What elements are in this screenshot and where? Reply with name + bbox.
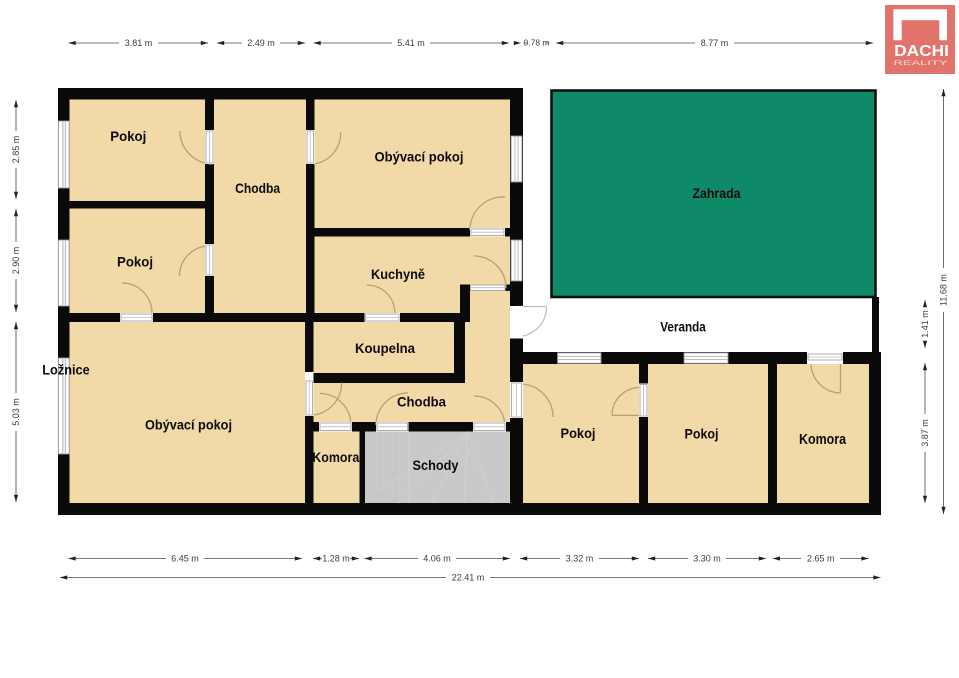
svg-text:22.41 m: 22.41 m bbox=[452, 573, 485, 583]
svg-text:3.32 m: 3.32 m bbox=[566, 554, 594, 564]
svg-text:11.68 m: 11.68 m bbox=[939, 274, 949, 306]
svg-text:2.65 m: 2.65 m bbox=[807, 554, 835, 564]
svg-text:1.41 m: 1.41 m bbox=[920, 310, 930, 338]
svg-text:Koupelna: Koupelna bbox=[355, 340, 415, 356]
svg-text:Komora: Komora bbox=[312, 449, 359, 465]
svg-text:Chodba: Chodba bbox=[235, 180, 280, 196]
svg-text:Schody: Schody bbox=[413, 457, 459, 473]
svg-text:Komora: Komora bbox=[799, 431, 847, 448]
svg-text:Pokoj: Pokoj bbox=[110, 128, 146, 144]
svg-text:5.03 m: 5.03 m bbox=[11, 398, 21, 426]
svg-text:3.87 m: 3.87 m bbox=[920, 419, 930, 447]
svg-text:0.78 m: 0.78 m bbox=[524, 38, 550, 48]
svg-text:Kuchyně: Kuchyně bbox=[371, 266, 425, 282]
svg-text:Obývací pokoj: Obývací pokoj bbox=[375, 149, 464, 165]
svg-text:Ložnice: Ložnice bbox=[42, 362, 90, 378]
svg-text:Zahrada: Zahrada bbox=[693, 185, 741, 201]
svg-text:5.41 m: 5.41 m bbox=[397, 38, 425, 48]
svg-text:Pokoj: Pokoj bbox=[685, 426, 719, 442]
svg-text:2.90 m: 2.90 m bbox=[11, 247, 21, 275]
svg-text:4.06 m: 4.06 m bbox=[423, 554, 451, 564]
svg-text:Obývací pokoj: Obývací pokoj bbox=[145, 416, 232, 432]
svg-text:1.28 m: 1.28 m bbox=[322, 554, 350, 564]
svg-text:Pokoj: Pokoj bbox=[117, 254, 153, 270]
svg-text:2.49 m: 2.49 m bbox=[247, 38, 275, 48]
svg-text:6.45 m: 6.45 m bbox=[171, 554, 199, 564]
svg-text:3.30 m: 3.30 m bbox=[693, 554, 721, 564]
svg-text:DACHI: DACHI bbox=[894, 43, 949, 60]
svg-text:Chodba: Chodba bbox=[397, 394, 446, 410]
svg-text:Veranda: Veranda bbox=[660, 319, 706, 335]
svg-text:2.85 m: 2.85 m bbox=[11, 136, 21, 164]
svg-text:Pokoj: Pokoj bbox=[561, 425, 596, 441]
svg-text:REALITY: REALITY bbox=[894, 60, 949, 67]
svg-text:3.81 m: 3.81 m bbox=[125, 38, 153, 48]
svg-text:8.77 m: 8.77 m bbox=[701, 38, 729, 48]
